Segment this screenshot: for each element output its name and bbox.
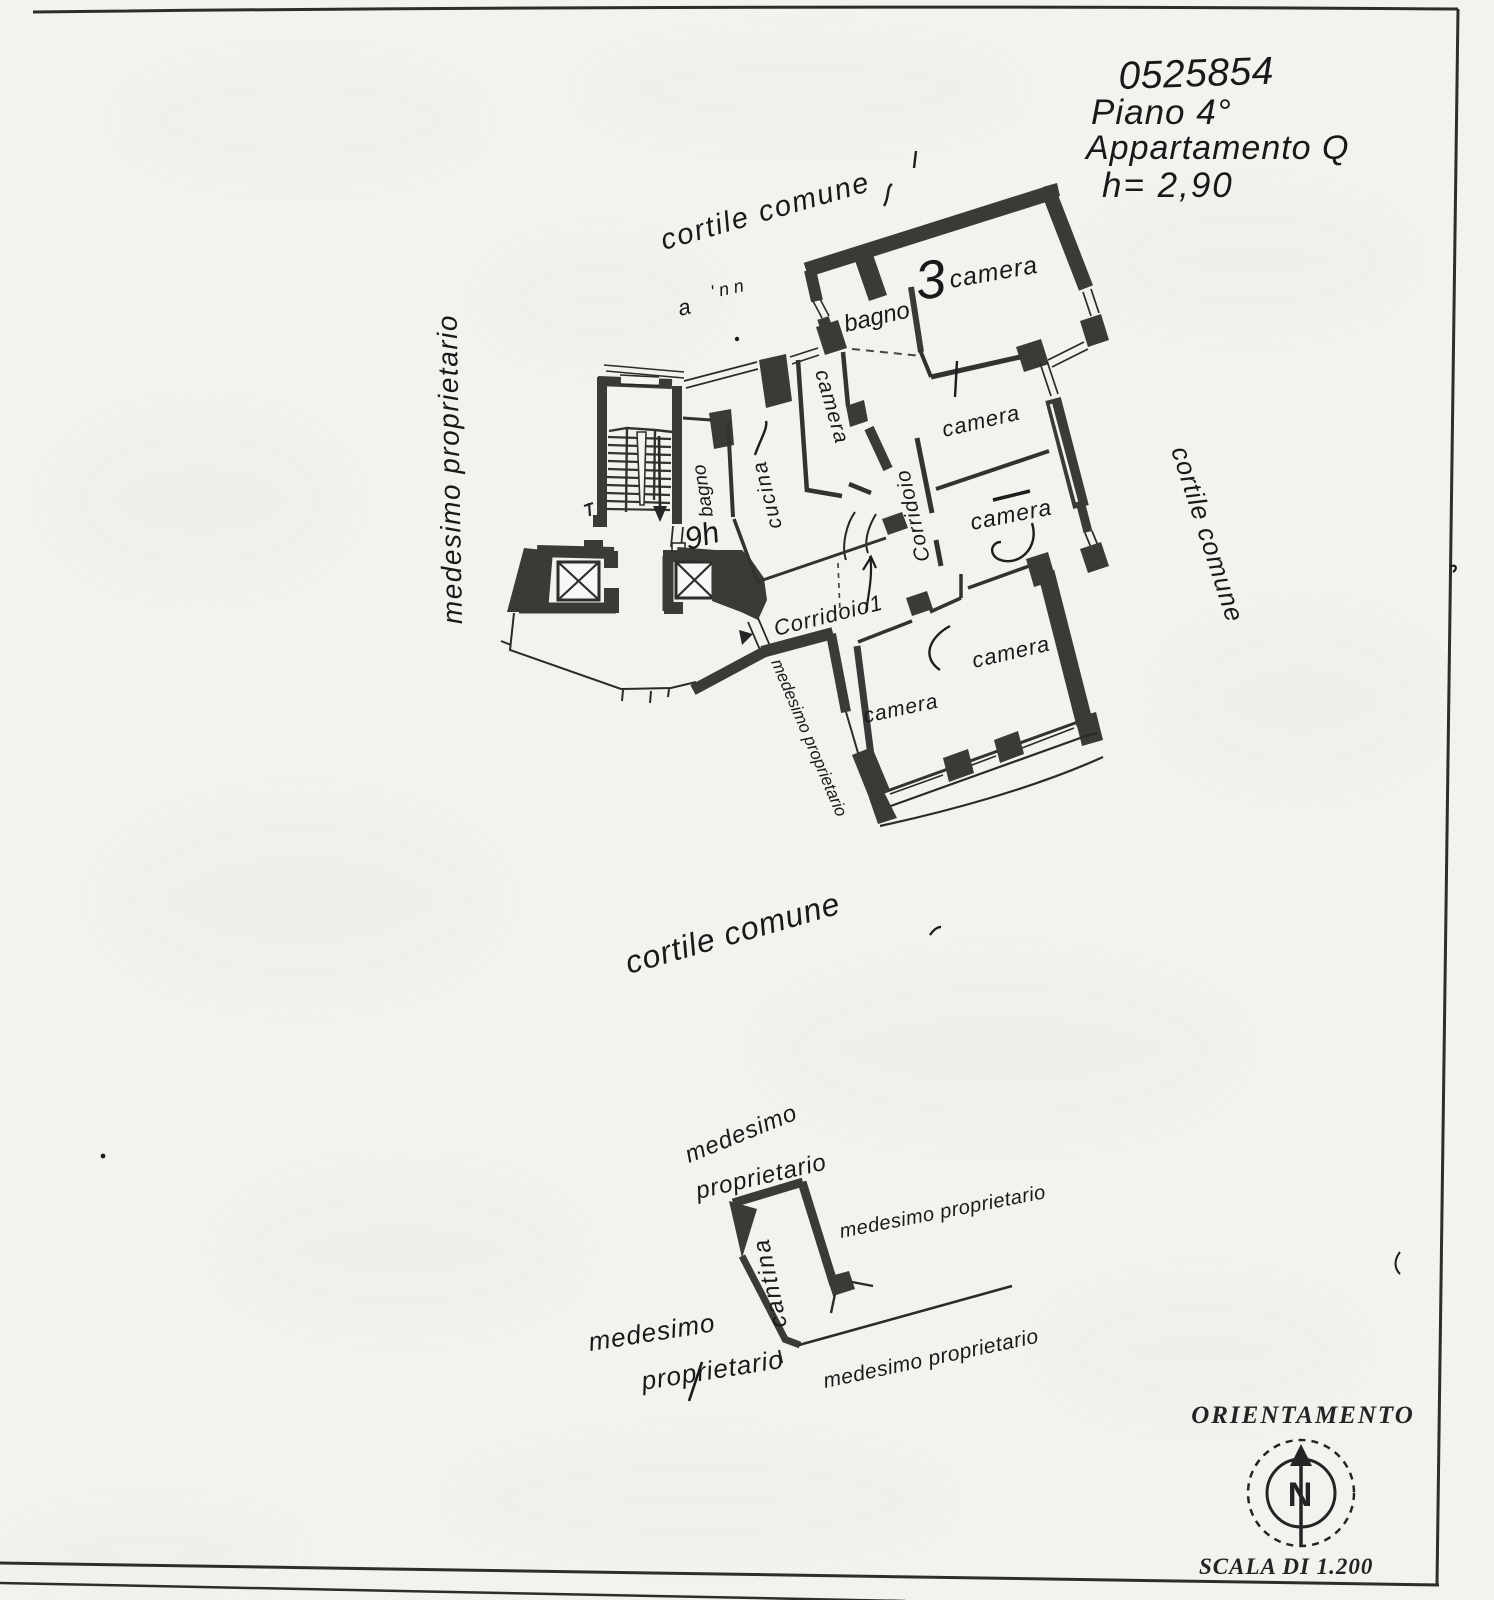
svg-text:h= 2,90: h= 2,90 <box>1102 166 1234 205</box>
svg-text:medesimo proprietario: medesimo proprietario <box>432 314 468 625</box>
svg-text:ORIENTAMENTO: ORIENTAMENTO <box>1191 1402 1415 1429</box>
svg-text:Piano 4°: Piano 4° <box>1091 93 1232 132</box>
svg-text:Appartamento Q: Appartamento Q <box>1084 129 1349 167</box>
svg-text:N: N <box>1288 1476 1313 1514</box>
svg-text:SCALA DI 1.200: SCALA DI 1.200 <box>1199 1554 1373 1579</box>
svg-text:0525854: 0525854 <box>1118 50 1275 98</box>
